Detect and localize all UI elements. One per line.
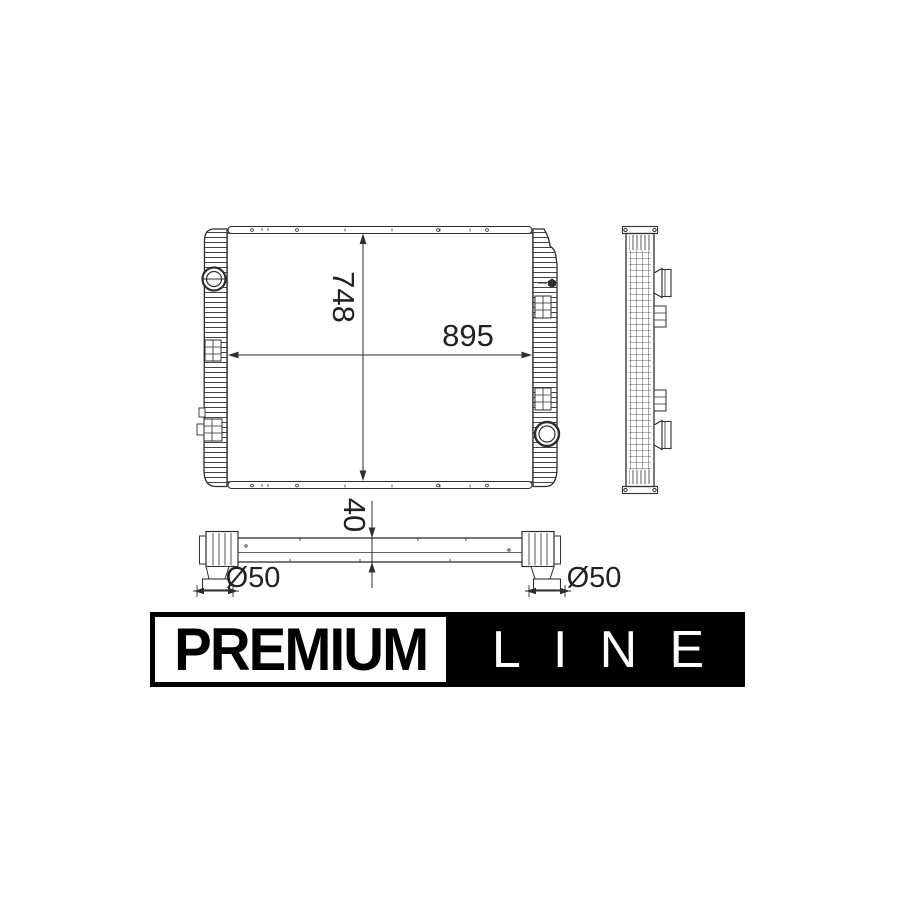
right-tank — [533, 229, 557, 487]
dim-depth-label: 40 — [337, 498, 372, 532]
dim-width-label: 895 — [442, 318, 494, 353]
dim-height-label: 748 — [326, 271, 361, 323]
dim-pipe-left-label: Ø50 — [226, 562, 281, 594]
line-badge: LINE — [451, 612, 745, 687]
bottom-pipe-stub — [654, 421, 671, 450]
front-view — [197, 227, 559, 489]
radiator-core — [227, 233, 533, 482]
side-view — [623, 227, 672, 494]
premium-line-banner: PREMIUM LINE — [150, 612, 745, 687]
top-pipe-stub — [654, 269, 671, 298]
premium-label: PREMIUM — [174, 620, 427, 680]
premium-badge: PREMIUM — [150, 612, 451, 687]
filler-cap-icon — [203, 268, 226, 291]
outlet-port-icon — [535, 422, 559, 446]
dim-pipe-right-label: Ø50 — [567, 562, 622, 594]
radiator-product-image: 748 895 40 Ø50 Ø50 PREMIUM LINE — [0, 0, 900, 900]
line-label: LINE — [492, 624, 737, 676]
right-connector — [522, 532, 561, 591]
technical-drawing: 748 895 40 Ø50 Ø50 — [0, 0, 900, 900]
